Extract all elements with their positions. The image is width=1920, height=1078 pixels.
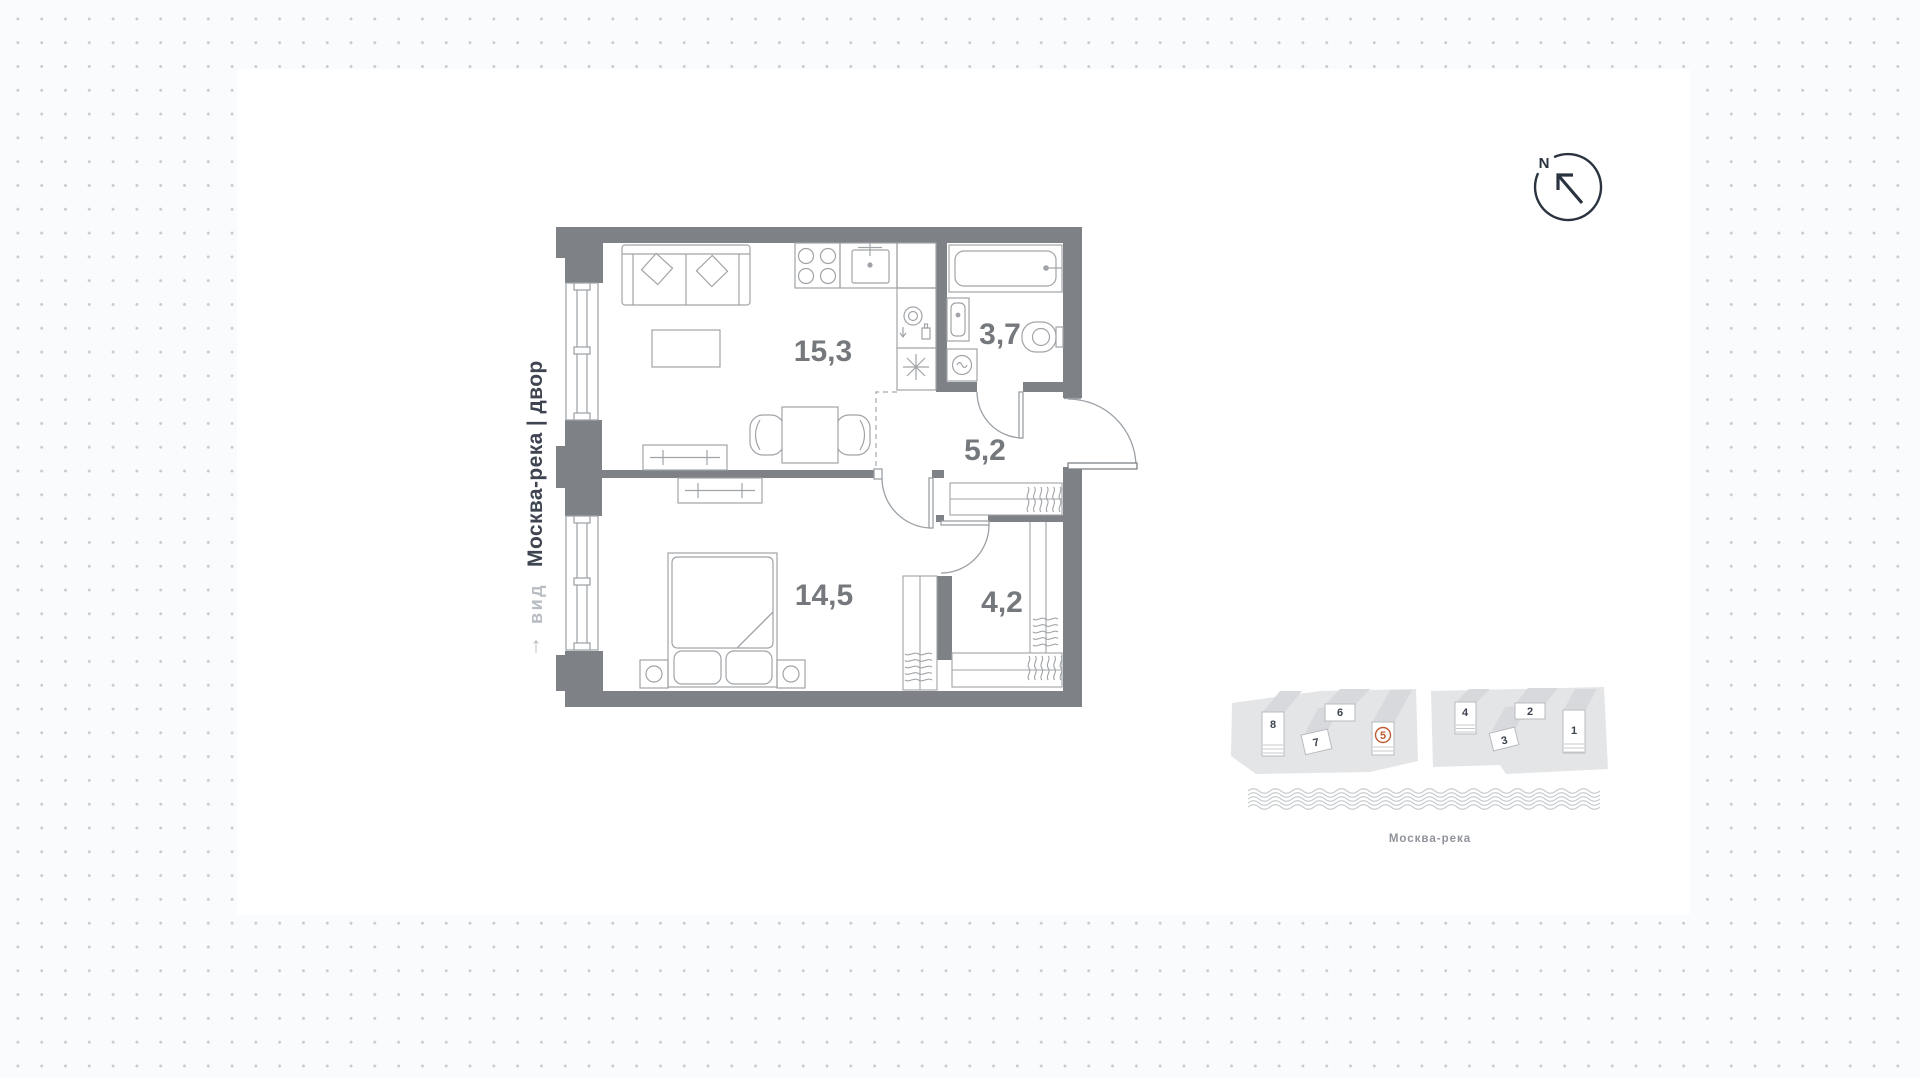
room-label-bathroom: 3,7: [979, 318, 1021, 351]
hanger-icon: [1059, 487, 1061, 512]
pillow-icon: [674, 651, 721, 684]
dishwasher-icon: [900, 307, 930, 339]
building-2[interactable]: 2: [1515, 703, 1545, 719]
bathroom-door-arc: [977, 392, 1023, 438]
compass: N: [1528, 147, 1608, 227]
room-label-hallway: 5,2: [964, 434, 1006, 467]
entrance-door-leaf: [1068, 463, 1137, 469]
hanger-icon: [1035, 656, 1037, 680]
nightstand: [777, 660, 805, 688]
building-8[interactable]: 8: [1262, 712, 1284, 756]
wardrobe-42-rail: [1030, 522, 1058, 653]
bath-sink-icon: [947, 298, 969, 341]
bedroom-door-arc: [882, 478, 932, 528]
north-arrow-icon: [1558, 175, 1582, 203]
dining-set: [750, 407, 870, 463]
stove-burner-icon: [799, 269, 814, 284]
stove-burner-icon: [821, 269, 836, 284]
hanger-icon: [1028, 656, 1030, 680]
hanger-icon: [905, 660, 932, 662]
bedroom-door-leaf: [929, 478, 933, 528]
wardrobe-door-leaf: [941, 521, 989, 525]
room-labels: 15,3 3,7 5,2 14,5 4,2: [794, 318, 1023, 619]
stove-burner-icon: [821, 249, 836, 264]
wall-end-cap: [874, 469, 882, 479]
lamp-icon: [646, 666, 662, 682]
nightstand: [640, 660, 668, 688]
hanger-icon: [1033, 618, 1058, 620]
svg-text:4: 4: [1462, 707, 1469, 719]
hanger-icon: [1034, 487, 1036, 512]
hanger-icon: [1033, 638, 1058, 640]
stove-burner-icon: [799, 249, 814, 264]
sofa-pillow-icon: [696, 255, 727, 286]
bathroom-door-leaf: [1019, 392, 1023, 438]
svg-text:2: 2: [1527, 706, 1533, 718]
compass-north-label: N: [1539, 155, 1550, 172]
sofa-pillow-icon: [641, 253, 672, 284]
mattress: [672, 557, 773, 648]
wardrobe-door-arc: [941, 525, 989, 573]
hanger-icon: [1053, 487, 1055, 512]
room-label-bedroom: 14,5: [795, 579, 853, 612]
zone-boundary-dashed-line: [876, 392, 897, 470]
hanger-icon: [1040, 487, 1042, 512]
site-plan: 8 7 6 5 4 3 2: [1225, 682, 1625, 852]
bathroom-fixtures: [947, 245, 1063, 381]
hanger-icon: [1047, 656, 1049, 680]
hanger-icon: [905, 673, 932, 675]
bed: [640, 553, 805, 688]
coffee-table: [652, 330, 720, 367]
hanger-icon: [1046, 487, 1048, 512]
hanger-icon: [1033, 644, 1058, 646]
river-label: Москва-река: [1389, 833, 1471, 845]
svg-text:1: 1: [1571, 725, 1577, 737]
toilet-icon: [1022, 322, 1056, 352]
building-5-highlighted[interactable]: 5: [1372, 722, 1394, 755]
bedroom-closet: [903, 576, 937, 690]
hanger-icon: [1033, 631, 1058, 633]
hall-closet: [950, 483, 1062, 515]
hanger-icon: [1033, 625, 1058, 627]
hanger-icon: [905, 653, 932, 655]
hanger-icon: [1054, 656, 1056, 680]
river-waves: [1248, 789, 1600, 810]
svg-text:5: 5: [1380, 730, 1386, 742]
entrance-door-arc: [1068, 399, 1136, 467]
room-label-wardrobe: 4,2: [981, 586, 1023, 619]
pillow-icon: [726, 651, 772, 684]
building-4[interactable]: 4: [1455, 702, 1476, 734]
building-6[interactable]: 6: [1325, 704, 1355, 721]
walls: [556, 227, 1082, 707]
light-asterisk-icon: [903, 354, 929, 380]
wardrobe-42-bottom: [952, 653, 1062, 687]
building-1[interactable]: 1: [1563, 710, 1585, 753]
hanger-icon: [905, 679, 932, 681]
hanger-icon: [905, 666, 932, 668]
room-label-living-kitchen: 15,3: [794, 335, 852, 368]
floor-plan: 15,3 3,7 5,2 14,5 4,2: [540, 215, 1160, 720]
lamp-icon: [783, 666, 799, 682]
blanket-fold: [737, 612, 773, 648]
hanger-icon: [1027, 487, 1029, 512]
svg-text:6: 6: [1337, 707, 1343, 719]
svg-text:8: 8: [1270, 719, 1276, 731]
window-upper: [566, 283, 598, 420]
hanger-icon: [1041, 656, 1043, 680]
sofa: [622, 245, 750, 305]
window-lower: [566, 516, 598, 650]
dining-table: [782, 407, 838, 463]
